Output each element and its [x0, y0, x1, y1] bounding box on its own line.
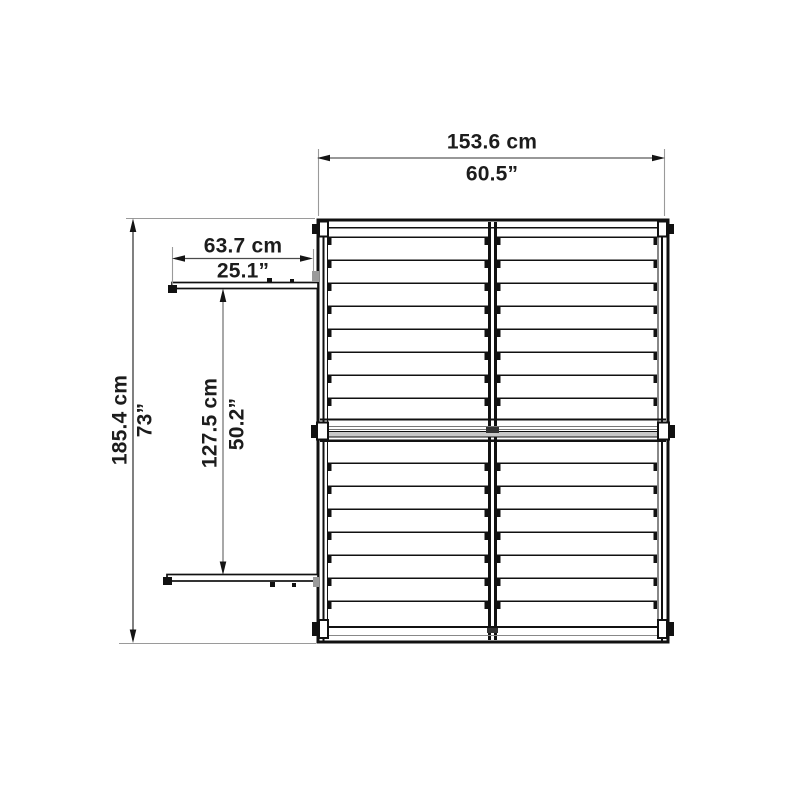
arrow-right-icon: [300, 255, 313, 261]
overall-width-dimension: [317, 155, 665, 162]
arrow-up-icon: [220, 289, 227, 303]
overall-depth-cm-label: 185.4 cm: [110, 375, 131, 465]
arrow-down-icon: [130, 630, 137, 644]
overall-width-cm-label: 153.6 cm: [447, 132, 537, 153]
lower-rail: [163, 575, 319, 588]
arrow-right-icon: [652, 155, 665, 162]
upper-rail-end-cap: [168, 285, 177, 293]
overall-width-inch-label: 60.5”: [466, 164, 518, 185]
rail-length-inch-label: 25.1”: [217, 261, 269, 282]
overall-depth-inch-label: 73”: [135, 403, 156, 437]
rail-length-cm-label: 63.7 cm: [204, 236, 282, 257]
rail-spacing-cm-label: 127.5 cm: [200, 378, 221, 468]
shed-dimension-diagram: 153.6 cm 60.5” 63.7 cm 25.1” 185.4 cm 73…: [0, 0, 800, 800]
arrow-up-icon: [130, 219, 137, 233]
lower-rail-end-cap: [163, 577, 172, 585]
rail-spacing-inch-label: 50.2”: [227, 398, 248, 450]
arrow-down-icon: [220, 562, 227, 576]
shed-structure: [311, 220, 675, 642]
arrow-left-icon: [172, 255, 185, 261]
